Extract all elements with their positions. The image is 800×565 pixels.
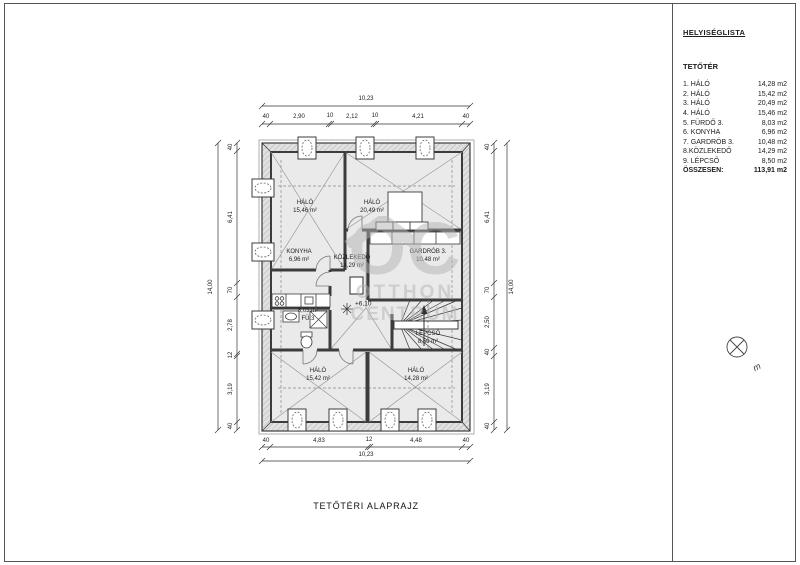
dim-label: 2,12 [346, 114, 358, 120]
panel-title: HELYISÉGLISTA [683, 28, 745, 37]
dim-label: 4,83 [313, 438, 325, 444]
dim-label: 6,41 [228, 211, 234, 223]
room-name: 8.KÖZLEKEDŐ [683, 148, 732, 155]
room-area: 15,46 m² [293, 207, 317, 215]
list-item: 8.KÖZLEKEDŐ14,29 m2 [683, 147, 787, 157]
room-area: 8,50 m² [416, 338, 440, 346]
list-item: 4. HÁLÓ15,46 m2 [683, 109, 787, 119]
dim-label: 40 [485, 349, 491, 356]
room-name: 7. GARDRÓB 3. [683, 139, 734, 146]
dim-label: 40 [228, 144, 234, 151]
dim-label: 6,41 [485, 211, 491, 223]
chimney-shaft [350, 277, 363, 294]
wardrobe-shelves [370, 232, 460, 244]
room-area: 14,29 m² [334, 262, 371, 270]
room-area: 14,28 m² [404, 375, 428, 383]
room-area: 10,48 m2 [758, 139, 787, 146]
room-name: GARDRÓB 3. [409, 248, 446, 256]
north-symbol [727, 337, 747, 357]
room-area: 8,03 m² [298, 307, 318, 315]
room-area: 8,03 m2 [762, 120, 787, 127]
list-item: 9. LÉPCSŐ8,50 m2 [683, 157, 787, 167]
room-name: 2. HÁLÓ [683, 91, 710, 98]
level-marker-label: +6,10 [355, 301, 371, 308]
dim-label: 3,19 [228, 383, 234, 395]
room-name: HÁLÓ [360, 199, 384, 207]
room-area: 10,48 m² [409, 256, 446, 264]
room-area: 6,96 m² [286, 256, 311, 264]
room-name: HÁLÓ [306, 367, 330, 375]
room-label-halo-1: HÁLÓ 14,28 m² [404, 367, 428, 383]
room-name: 1. HÁLÓ [683, 81, 710, 88]
room-name: KÖZLEKEDŐ [334, 254, 371, 262]
room-label-kozlekedo: KÖZLEKEDŐ 14,29 m² [334, 254, 371, 270]
room-name: 3. HÁLÓ [683, 100, 710, 107]
dim-label: 12 [228, 352, 234, 359]
dim-label: 4,48 [410, 438, 422, 444]
drawing-sheet: 10,23 40 2,90 10 2,12 10 4,21 40 40 4,83… [0, 0, 800, 565]
dim-label: 40 [485, 423, 491, 430]
list-item: 2. HÁLÓ15,42 m2 [683, 90, 787, 100]
dim-label: 10,23 [358, 452, 373, 458]
room-name: LÉPCSŐ [416, 330, 440, 338]
room-area: 15,42 m² [306, 375, 330, 383]
room-area: 14,29 m2 [758, 148, 787, 155]
room-area: 6,96 m2 [762, 129, 787, 136]
dim-label: 40 [463, 438, 470, 444]
room-name: HÁLÓ [293, 199, 317, 207]
room-label-halo-4: HÁLÓ 15,46 m² [293, 199, 317, 215]
dim-label: 2,78 [228, 319, 234, 331]
room-label-furdo: 8,03 m² FÜ.3 [298, 307, 318, 323]
list-item: 6. KONYHA6,96 m2 [683, 128, 787, 138]
dim-label: 40 [463, 114, 470, 120]
dim-label: 10 [327, 113, 334, 119]
dim-label: 3,19 [485, 383, 491, 395]
total-row: ÖSSZESEN: 113,91 m2 [683, 167, 787, 174]
room-name: HÁLÓ [404, 367, 428, 375]
floorplan-linework [0, 0, 800, 565]
room-name: 9. LÉPCSŐ [683, 158, 719, 165]
room-area: 20,49 m2 [758, 100, 787, 107]
dim-label: 10,23 [358, 96, 373, 102]
room-name: FÜ.3 [298, 315, 318, 323]
dim-label: 12 [366, 437, 373, 443]
room-name: 4. HÁLÓ [683, 110, 710, 117]
room-area: 14,28 m2 [758, 81, 787, 88]
total-label: ÖSSZESEN: [683, 167, 723, 174]
dim-label: 10 [372, 113, 379, 119]
dim-label: 14,00 [208, 279, 214, 294]
list-item: 5. FÜRDŐ 3.8,03 m2 [683, 118, 787, 128]
room-list: 1. HÁLÓ14,28 m2 2. HÁLÓ15,42 m2 3. HÁLÓ2… [683, 80, 787, 166]
room-label-gardrob: GARDRÓB 3. 10,48 m² [409, 248, 446, 264]
room-area: 15,46 m2 [758, 110, 787, 117]
room-label-halo-2: HÁLÓ 15,42 m² [306, 367, 330, 383]
total-value: 113,91 m2 [754, 167, 787, 174]
room-area: 15,42 m2 [758, 91, 787, 98]
dim-label: 2,50 [485, 316, 491, 328]
dim-label: 40 [263, 114, 270, 120]
list-item: 7. GARDRÓB 3.10,48 m2 [683, 138, 787, 148]
kitchen-counter [272, 294, 330, 307]
room-label-lepcso: LÉPCSŐ 8,50 m² [416, 330, 440, 346]
dim-label: 40 [263, 438, 270, 444]
drawing-title: TETŐTÉRI ALAPRAJZ [313, 501, 419, 511]
dim-label: 40 [228, 423, 234, 430]
dim-label: 70 [485, 287, 491, 294]
room-name: KONYHA [286, 248, 311, 256]
list-item: 1. HÁLÓ14,28 m2 [683, 80, 787, 90]
room-label-halo-3: HÁLÓ 20,49 m² [360, 199, 384, 215]
room-name: 5. FÜRDŐ 3. [683, 120, 723, 127]
dim-label: 40 [485, 144, 491, 151]
dim-label: 14,00 [509, 279, 515, 294]
room-label-konyha: KONYHA 6,96 m² [286, 248, 311, 264]
dim-label: 70 [228, 287, 234, 294]
room-area: 20,49 m² [360, 207, 384, 215]
room-area: 8,50 m2 [762, 158, 787, 165]
dim-label: 4,21 [412, 114, 424, 120]
dim-label: 2,90 [293, 114, 305, 120]
panel-section-title: TETŐTÉR [683, 62, 718, 71]
room-name: 6. KONYHA [683, 129, 720, 136]
list-item: 3. HÁLÓ20,49 m2 [683, 99, 787, 109]
